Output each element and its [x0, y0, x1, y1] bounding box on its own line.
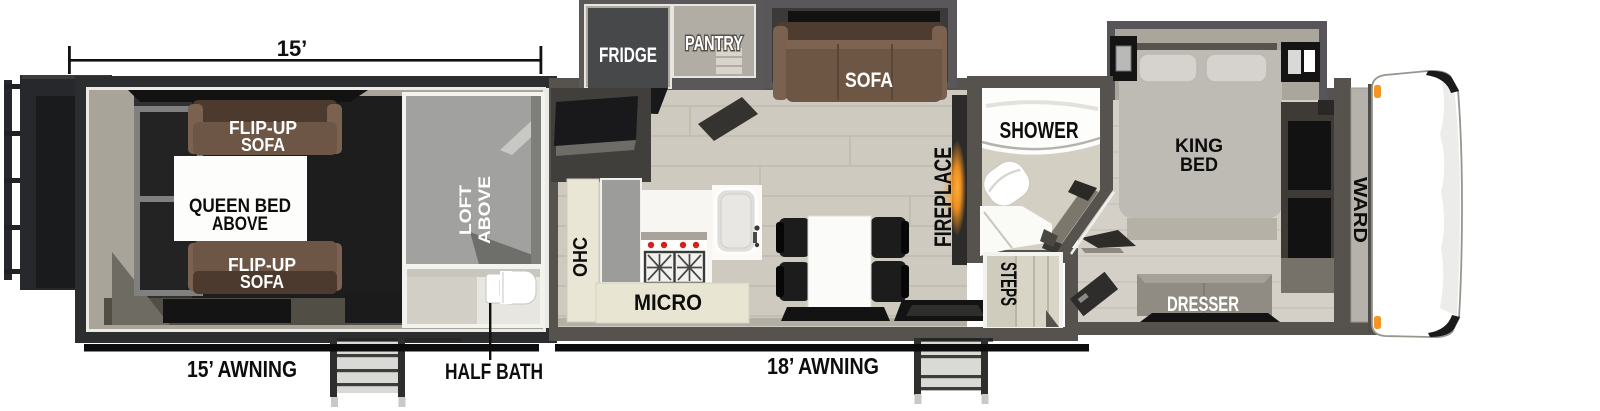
- svg-text:HALF BATH: HALF BATH: [445, 359, 543, 384]
- svg-text:15’ AWNING: 15’ AWNING: [187, 356, 297, 382]
- svg-text:KING: KING: [1175, 136, 1223, 157]
- svg-text:ABOVE: ABOVE: [212, 214, 268, 235]
- svg-text:SOFA: SOFA: [240, 272, 284, 292]
- svg-text:DRESSER: DRESSER: [1167, 293, 1239, 316]
- svg-text:SOFA: SOFA: [845, 69, 893, 92]
- svg-text:SOFA: SOFA: [241, 135, 285, 155]
- svg-text:15’: 15’: [277, 36, 308, 61]
- svg-text:LOFT: LOFT: [456, 184, 475, 235]
- svg-text:FRIDGE: FRIDGE: [599, 44, 657, 67]
- svg-text:SHOWER: SHOWER: [1000, 117, 1079, 143]
- svg-text:FIREPLACE: FIREPLACE: [930, 147, 957, 247]
- svg-text:18’ AWNING: 18’ AWNING: [767, 353, 879, 379]
- svg-text:STEPS: STEPS: [996, 262, 1021, 306]
- svg-text:MICRO: MICRO: [634, 290, 702, 315]
- svg-text:ABOVE: ABOVE: [475, 176, 494, 244]
- svg-text:OHC: OHC: [570, 237, 592, 277]
- svg-text:BED: BED: [1180, 155, 1218, 176]
- svg-text:PANTRY: PANTRY: [685, 33, 743, 55]
- svg-text:WARD: WARD: [1350, 177, 1370, 243]
